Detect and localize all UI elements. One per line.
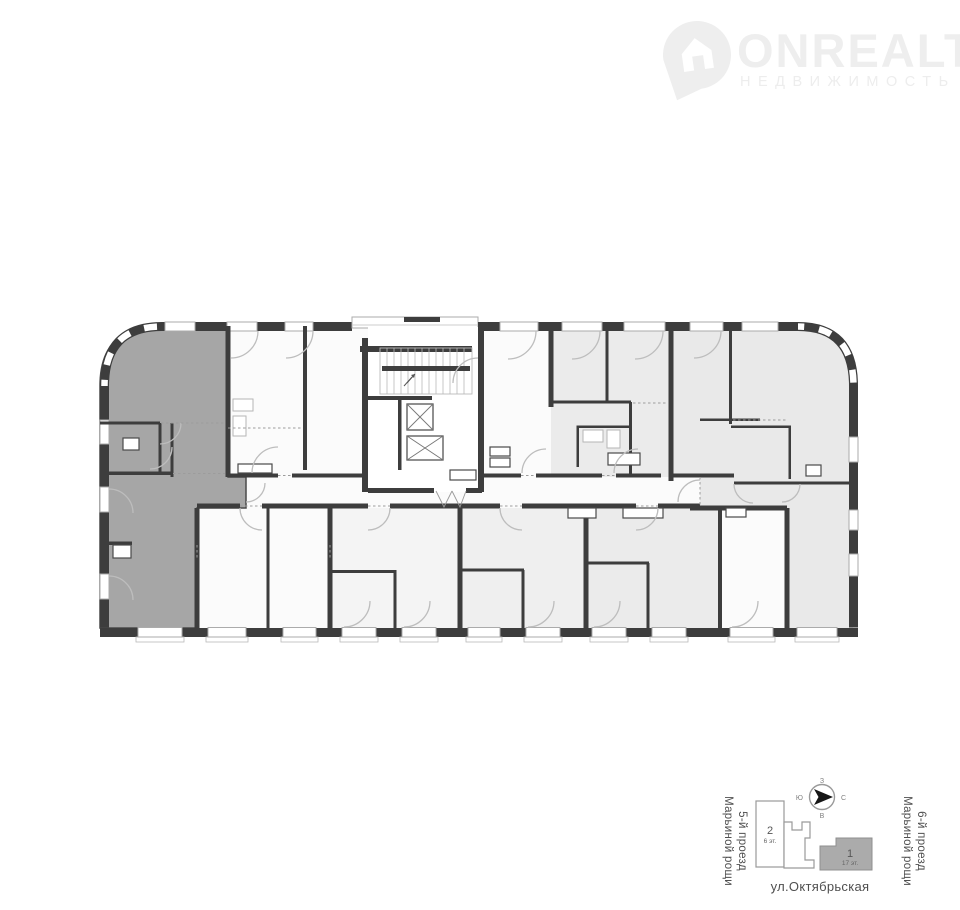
room-bottom-c (586, 508, 720, 628)
floor-plan (100, 317, 858, 642)
house-pin-icon (659, 17, 737, 102)
compass-east-label: В (820, 813, 825, 820)
building-1-floors: 17 эт. (842, 860, 858, 867)
building-2-floors: 6 эт. (764, 838, 777, 845)
compass-icon: З С Ю В (796, 778, 846, 820)
street-right-line1: 6-й проезд (915, 811, 927, 871)
building-1-number: 1 (847, 848, 853, 860)
mini-map: З С Ю В 2 6 эт. 1 17 эт. 5-й проезд Марь… (722, 778, 927, 894)
map-building-1[interactable]: 1 17 эт. (820, 838, 872, 870)
page-canvas: ONREALT НЕДВИЖИМОСТЬ (0, 0, 960, 910)
map-building-2[interactable]: 2 6 эт. (756, 801, 784, 867)
street-label-bottom: ул.Октябрьская (771, 879, 870, 894)
map-connector (784, 822, 814, 868)
compass-south-label: Ю (796, 795, 803, 802)
screenshot-root: ONREALT НЕДВИЖИМОСТЬ (0, 0, 960, 910)
compass-west-label: З (820, 778, 824, 785)
street-right-line2: Марьиной рощи (901, 796, 913, 886)
logo-brand-text: ONREALT (737, 24, 960, 77)
logo-subtitle-text: НЕДВИЖИМОСТЬ (740, 74, 956, 90)
elevator-icon (407, 404, 433, 430)
elevator-icon-2 (407, 436, 443, 460)
street-label-left: 5-й проезд Марьиной рощи (722, 796, 748, 886)
street-left-line2: Марьиной рощи (722, 796, 734, 886)
stair-elevator-core (360, 322, 484, 507)
compass-north-label: С (841, 795, 846, 802)
logo: ONREALT НЕДВИЖИМОСТЬ (659, 17, 960, 102)
building-2-number: 2 (767, 825, 773, 837)
street-label-right: 6-й проезд Марьиной рощи (901, 796, 927, 886)
street-left-line1: 5-й проезд (736, 811, 748, 871)
windows-bottom (136, 628, 839, 643)
